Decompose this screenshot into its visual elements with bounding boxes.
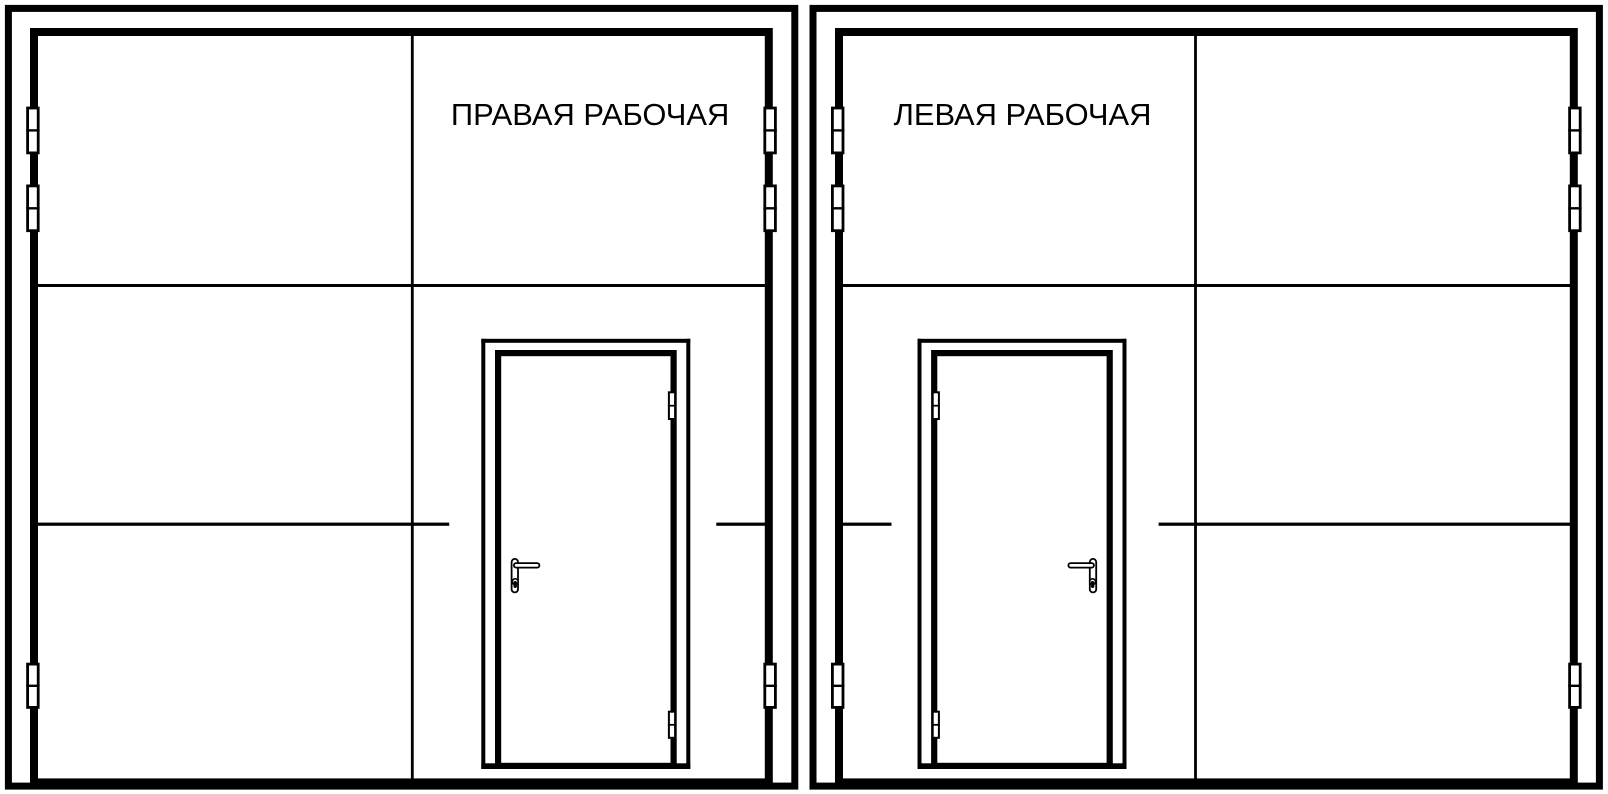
svg-text:ЛЕВАЯ РАБОЧАЯ: ЛЕВАЯ РАБОЧАЯ bbox=[894, 97, 1152, 132]
svg-text:ПРАВАЯ РАБОЧАЯ: ПРАВАЯ РАБОЧАЯ bbox=[451, 97, 729, 132]
